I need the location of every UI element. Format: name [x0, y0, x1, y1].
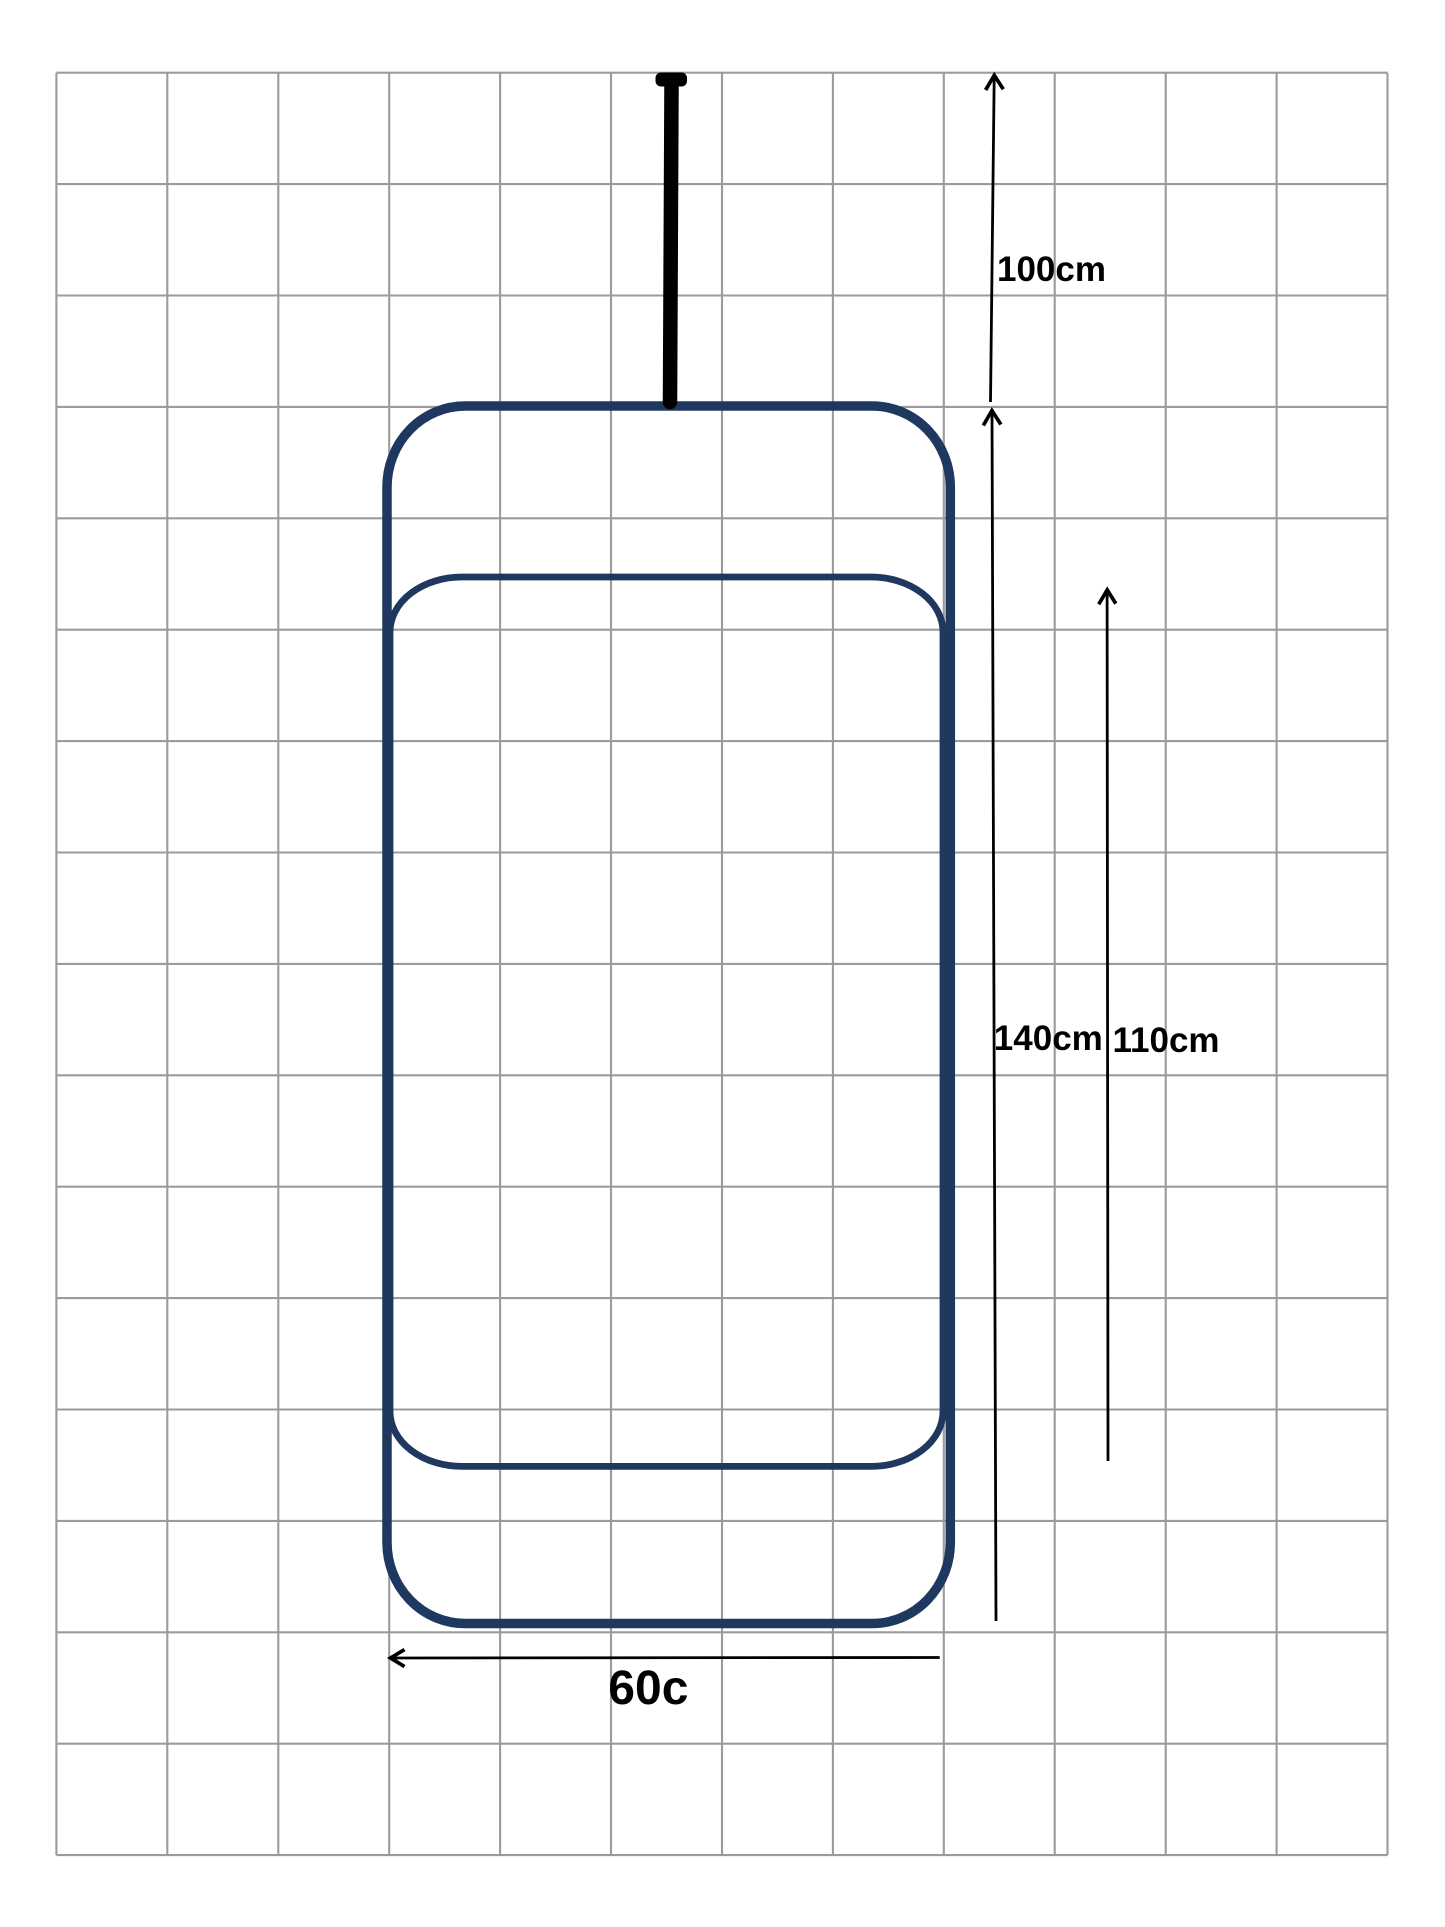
svg-text:100cm: 100cm	[997, 250, 1106, 289]
svg-text:140cm: 140cm	[994, 1019, 1103, 1058]
svg-text:60c: 60c	[608, 1662, 688, 1715]
svg-text:110cm: 110cm	[1113, 1021, 1220, 1060]
